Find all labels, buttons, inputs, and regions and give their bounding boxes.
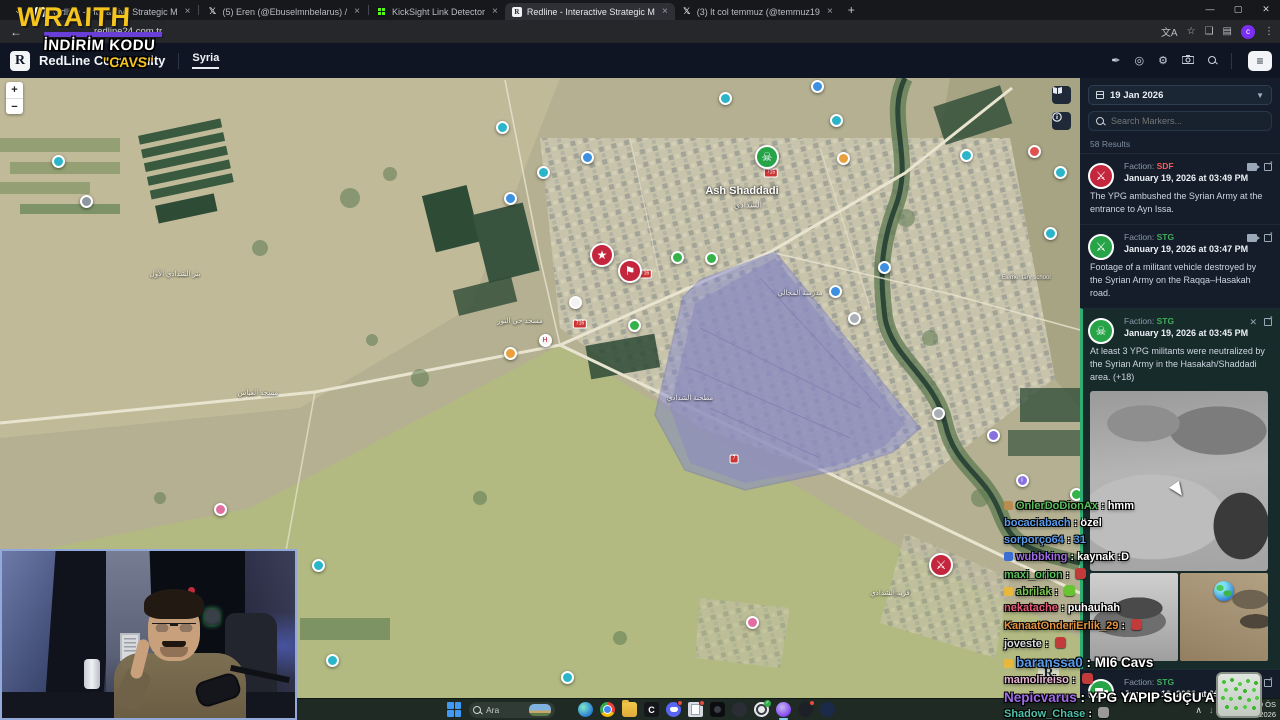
poi-marker[interactable] bbox=[628, 319, 641, 332]
chrome-icon[interactable] bbox=[600, 702, 615, 717]
announcement-marker[interactable]: ⚑ bbox=[618, 259, 642, 283]
tab-close-button[interactable]: × bbox=[827, 6, 833, 17]
map-label: قرية الشدادي bbox=[870, 589, 909, 597]
poi-marker[interactable] bbox=[504, 192, 517, 205]
clash-marker[interactable]: ★ bbox=[590, 243, 614, 267]
entry-timestamp: January 19, 2026 at 03:49 PM bbox=[1124, 173, 1270, 183]
edge-icon[interactable] bbox=[578, 702, 593, 717]
poi-marker[interactable] bbox=[746, 616, 759, 629]
tab-close-button[interactable]: × bbox=[185, 6, 191, 17]
casualty-marker[interactable]: ☠ bbox=[755, 145, 779, 169]
poi-marker[interactable] bbox=[581, 151, 594, 164]
poi-marker[interactable] bbox=[569, 296, 582, 309]
poi-marker[interactable] bbox=[214, 503, 227, 516]
close-icon[interactable]: ✕ bbox=[1249, 318, 1257, 326]
globe-emote bbox=[1214, 581, 1234, 601]
date-picker[interactable]: 19 Jan 2026 ▼ bbox=[1088, 85, 1272, 105]
bookmark-star-icon[interactable]: ☆ bbox=[1187, 26, 1196, 37]
hamburger-menu-button[interactable]: ≡ bbox=[1248, 51, 1272, 71]
webcam-overlay bbox=[0, 549, 297, 720]
search-highlight-thumb bbox=[529, 704, 551, 716]
kicksight-favicon bbox=[377, 7, 387, 17]
chevron-down-icon: ▼ bbox=[1256, 91, 1264, 100]
translate-icon[interactable]: 文A bbox=[1161, 24, 1178, 39]
poi-marker[interactable] bbox=[829, 285, 842, 298]
address-bar-actions: 文A ☆ ❑ ▤ c ⋮ bbox=[1161, 20, 1274, 43]
poi-marker[interactable] bbox=[671, 251, 684, 264]
notes-app-icon[interactable] bbox=[688, 702, 703, 717]
poi-marker[interactable] bbox=[1070, 488, 1081, 501]
site-header: R RedLine Community Syria bbox=[0, 43, 1280, 78]
clash-icon: ⚔ bbox=[1088, 234, 1114, 260]
address-bar[interactable]: ← redline24.com.tr bbox=[0, 20, 1280, 43]
brand-text: WRAITH bbox=[16, 4, 163, 31]
map-label: الشدادي bbox=[734, 201, 762, 210]
entry-text: The YPG ambushed the Syrian Army at the … bbox=[1090, 190, 1270, 216]
file-explorer-icon[interactable] bbox=[622, 702, 637, 717]
tab-close-button[interactable]: × bbox=[492, 6, 498, 17]
taskbar-search-label: Ara bbox=[486, 705, 499, 715]
poi-marker[interactable] bbox=[848, 312, 861, 325]
maximize-button[interactable]: ▢ bbox=[1224, 0, 1252, 18]
entry-thumbnail[interactable] bbox=[1180, 573, 1268, 661]
gear-icon[interactable]: ⚙ bbox=[1158, 54, 1168, 67]
tray-expand-icon[interactable]: ∧ bbox=[1195, 705, 1202, 716]
x-favicon: 𝕏 bbox=[682, 7, 692, 17]
map-label: بئر الشدادي الأول bbox=[150, 270, 201, 278]
hospital-marker[interactable]: H bbox=[539, 334, 552, 347]
start-button[interactable] bbox=[447, 702, 462, 717]
results-count: 58 Results bbox=[1090, 139, 1270, 149]
chat-emote-image bbox=[1216, 672, 1262, 718]
window-controls: — ▢ ✕ bbox=[1196, 0, 1280, 18]
redline-watermark: R bbox=[1038, 663, 1059, 684]
event-entry[interactable]: ⚔ Faction: SDF January 19, 2026 at 03:49… bbox=[1080, 153, 1280, 224]
pen-icon[interactable]: ✒ bbox=[1111, 54, 1120, 67]
faction-value: STG bbox=[1157, 677, 1174, 687]
entry-text: At least 3 YPG militants were neutralize… bbox=[1090, 345, 1270, 384]
poi-marker[interactable] bbox=[1028, 145, 1041, 158]
skull-icon: ☠ bbox=[1088, 318, 1114, 344]
header-icon-group: ✒ ◎ ⚙ ≡ bbox=[1111, 43, 1272, 78]
map-label: مسجد العباس bbox=[238, 389, 278, 397]
promo-code: "CAVS" bbox=[102, 55, 161, 69]
poi-marker[interactable] bbox=[326, 654, 339, 667]
browser-tab[interactable]: KickSight Link Detector × bbox=[370, 3, 505, 20]
extensions-icon[interactable]: ❑ bbox=[1205, 26, 1214, 37]
browser-menu-icon[interactable]: ⋮ bbox=[1264, 26, 1274, 37]
search-icon[interactable] bbox=[1208, 56, 1217, 65]
road-shield: 7 bbox=[730, 455, 739, 464]
poi-marker[interactable] bbox=[537, 166, 550, 179]
map-info-button[interactable] bbox=[1052, 112, 1071, 130]
faction-value: SDF bbox=[1157, 161, 1174, 171]
poi-marker[interactable] bbox=[719, 92, 732, 105]
taskbar-search[interactable]: Ara bbox=[469, 702, 555, 718]
poi-marker[interactable] bbox=[987, 429, 1000, 442]
poi-marker[interactable] bbox=[811, 80, 824, 93]
info-marker[interactable]: i bbox=[1016, 474, 1029, 487]
camera-icon[interactable] bbox=[1182, 55, 1194, 67]
close-window-button[interactable]: ✕ bbox=[1252, 0, 1280, 18]
search-icon bbox=[1096, 117, 1105, 126]
poi-marker[interactable] bbox=[496, 121, 509, 134]
capcut-icon[interactable]: C bbox=[644, 702, 659, 717]
map-layers-button[interactable] bbox=[1052, 86, 1071, 104]
location-icon[interactable]: ◎ bbox=[1135, 54, 1145, 67]
browser-tab[interactable]: 𝕏 (5) Eren (@Ebuselmnbelarus) / × bbox=[200, 3, 367, 20]
browser-tab-bar: ⌄ R Redline - Interactive Strategic M × … bbox=[0, 0, 1280, 20]
map-label: Elementary school bbox=[1001, 275, 1050, 281]
browser-tab[interactable]: 𝕏 (3) lt col temmuz (@temmuz19 × bbox=[675, 3, 840, 20]
poi-marker[interactable] bbox=[504, 347, 517, 360]
stream-brand-overlay: WRAITH İNDİRİM KODU "CAVS" bbox=[14, 4, 163, 69]
map-label: Ash Shaddadi bbox=[705, 185, 778, 197]
poi-marker[interactable] bbox=[80, 195, 93, 208]
poi-marker[interactable] bbox=[312, 559, 325, 572]
redline-favicon: R bbox=[512, 7, 522, 17]
tab-close-button[interactable]: × bbox=[354, 6, 360, 17]
nav-tab-syria[interactable]: Syria bbox=[192, 52, 219, 69]
poi-marker[interactable] bbox=[52, 155, 65, 168]
poi-marker[interactable] bbox=[705, 252, 718, 265]
date-picker-value: 19 Jan 2026 bbox=[1110, 90, 1163, 101]
entry-thumbnail[interactable] bbox=[1090, 573, 1178, 661]
map-label: مسجد حي النور bbox=[497, 317, 542, 325]
external-link-icon[interactable] bbox=[1264, 679, 1272, 687]
road-shield: 716 bbox=[573, 320, 587, 329]
map-label: مدرسة المجالي bbox=[777, 289, 822, 297]
obs-icon[interactable]: ✓ bbox=[754, 702, 769, 717]
app-icon-badge[interactable] bbox=[798, 702, 813, 717]
info-icon bbox=[1052, 112, 1062, 122]
search-icon bbox=[473, 706, 482, 715]
app-icon-navy[interactable] bbox=[820, 702, 835, 717]
screen: Ash Shaddadiالشداديبئر الشدادي الأولمسجد… bbox=[0, 0, 1280, 720]
faction-value: STG bbox=[1157, 316, 1174, 326]
map-zoom-control: + − bbox=[6, 82, 23, 114]
poi-marker[interactable] bbox=[1054, 166, 1067, 179]
x-favicon: 𝕏 bbox=[207, 7, 217, 17]
taskbar-apps: C✓ bbox=[578, 702, 835, 717]
tab-close-button[interactable]: × bbox=[662, 6, 668, 17]
download-icon[interactable]: ↓ bbox=[1209, 705, 1214, 715]
external-link-icon[interactable] bbox=[1264, 163, 1272, 171]
calendar-icon bbox=[1096, 91, 1104, 99]
external-link-icon[interactable] bbox=[1264, 318, 1272, 326]
browser-tab-active[interactable]: R Redline - Interactive Strategic M × bbox=[505, 3, 675, 20]
promo-text: İNDİRİM KODU bbox=[43, 38, 162, 55]
book-icon bbox=[1052, 86, 1063, 95]
events-sidebar: 19 Jan 2026 ▼ 58 Results ⚔ Faction: SDF … bbox=[1080, 78, 1280, 720]
entry-timestamp: January 19, 2026 at 03:45 PM bbox=[1124, 328, 1270, 338]
poi-marker[interactable] bbox=[932, 407, 945, 420]
external-link-icon[interactable] bbox=[1264, 234, 1272, 242]
faction-value: STG bbox=[1157, 232, 1174, 242]
poi-marker[interactable] bbox=[1044, 227, 1057, 240]
app-icon-dark[interactable] bbox=[710, 702, 725, 717]
new-tab-button[interactable]: + bbox=[848, 3, 855, 17]
marker-search[interactable] bbox=[1088, 111, 1272, 131]
browser-profile-icon[interactable] bbox=[776, 702, 791, 717]
road-shield: 715 bbox=[764, 169, 778, 178]
clash-icon: ⚔ bbox=[1088, 163, 1114, 189]
poi-marker[interactable] bbox=[960, 149, 973, 162]
zoom-in-button[interactable]: + bbox=[6, 82, 23, 98]
event-entry[interactable]: ⚔ Faction: STG January 19, 2026 at 03:47… bbox=[1080, 224, 1280, 308]
sidebar-toggle-icon[interactable]: ▤ bbox=[1223, 26, 1232, 37]
marker-search-input[interactable] bbox=[1111, 116, 1251, 126]
poi-marker[interactable] bbox=[878, 261, 891, 274]
discord-icon[interactable] bbox=[666, 702, 681, 717]
video-icon[interactable] bbox=[1247, 234, 1257, 242]
map-label: مطحنة الشدادي bbox=[667, 394, 713, 402]
poi-marker[interactable] bbox=[561, 671, 574, 684]
entry-timestamp: January 19, 2026 at 03:47 PM bbox=[1124, 244, 1270, 254]
attack-marker[interactable]: ⚔ bbox=[929, 553, 953, 577]
zoom-out-button[interactable]: − bbox=[6, 98, 23, 114]
profile-avatar[interactable]: c bbox=[1241, 25, 1255, 39]
app-icon-gray[interactable] bbox=[732, 702, 747, 717]
poi-marker[interactable] bbox=[830, 114, 843, 127]
poi-marker[interactable] bbox=[837, 152, 850, 165]
entry-text: Footage of a militant vehicle destroyed … bbox=[1090, 261, 1270, 300]
minimize-button[interactable]: — bbox=[1196, 0, 1224, 18]
video-icon[interactable] bbox=[1247, 163, 1257, 171]
